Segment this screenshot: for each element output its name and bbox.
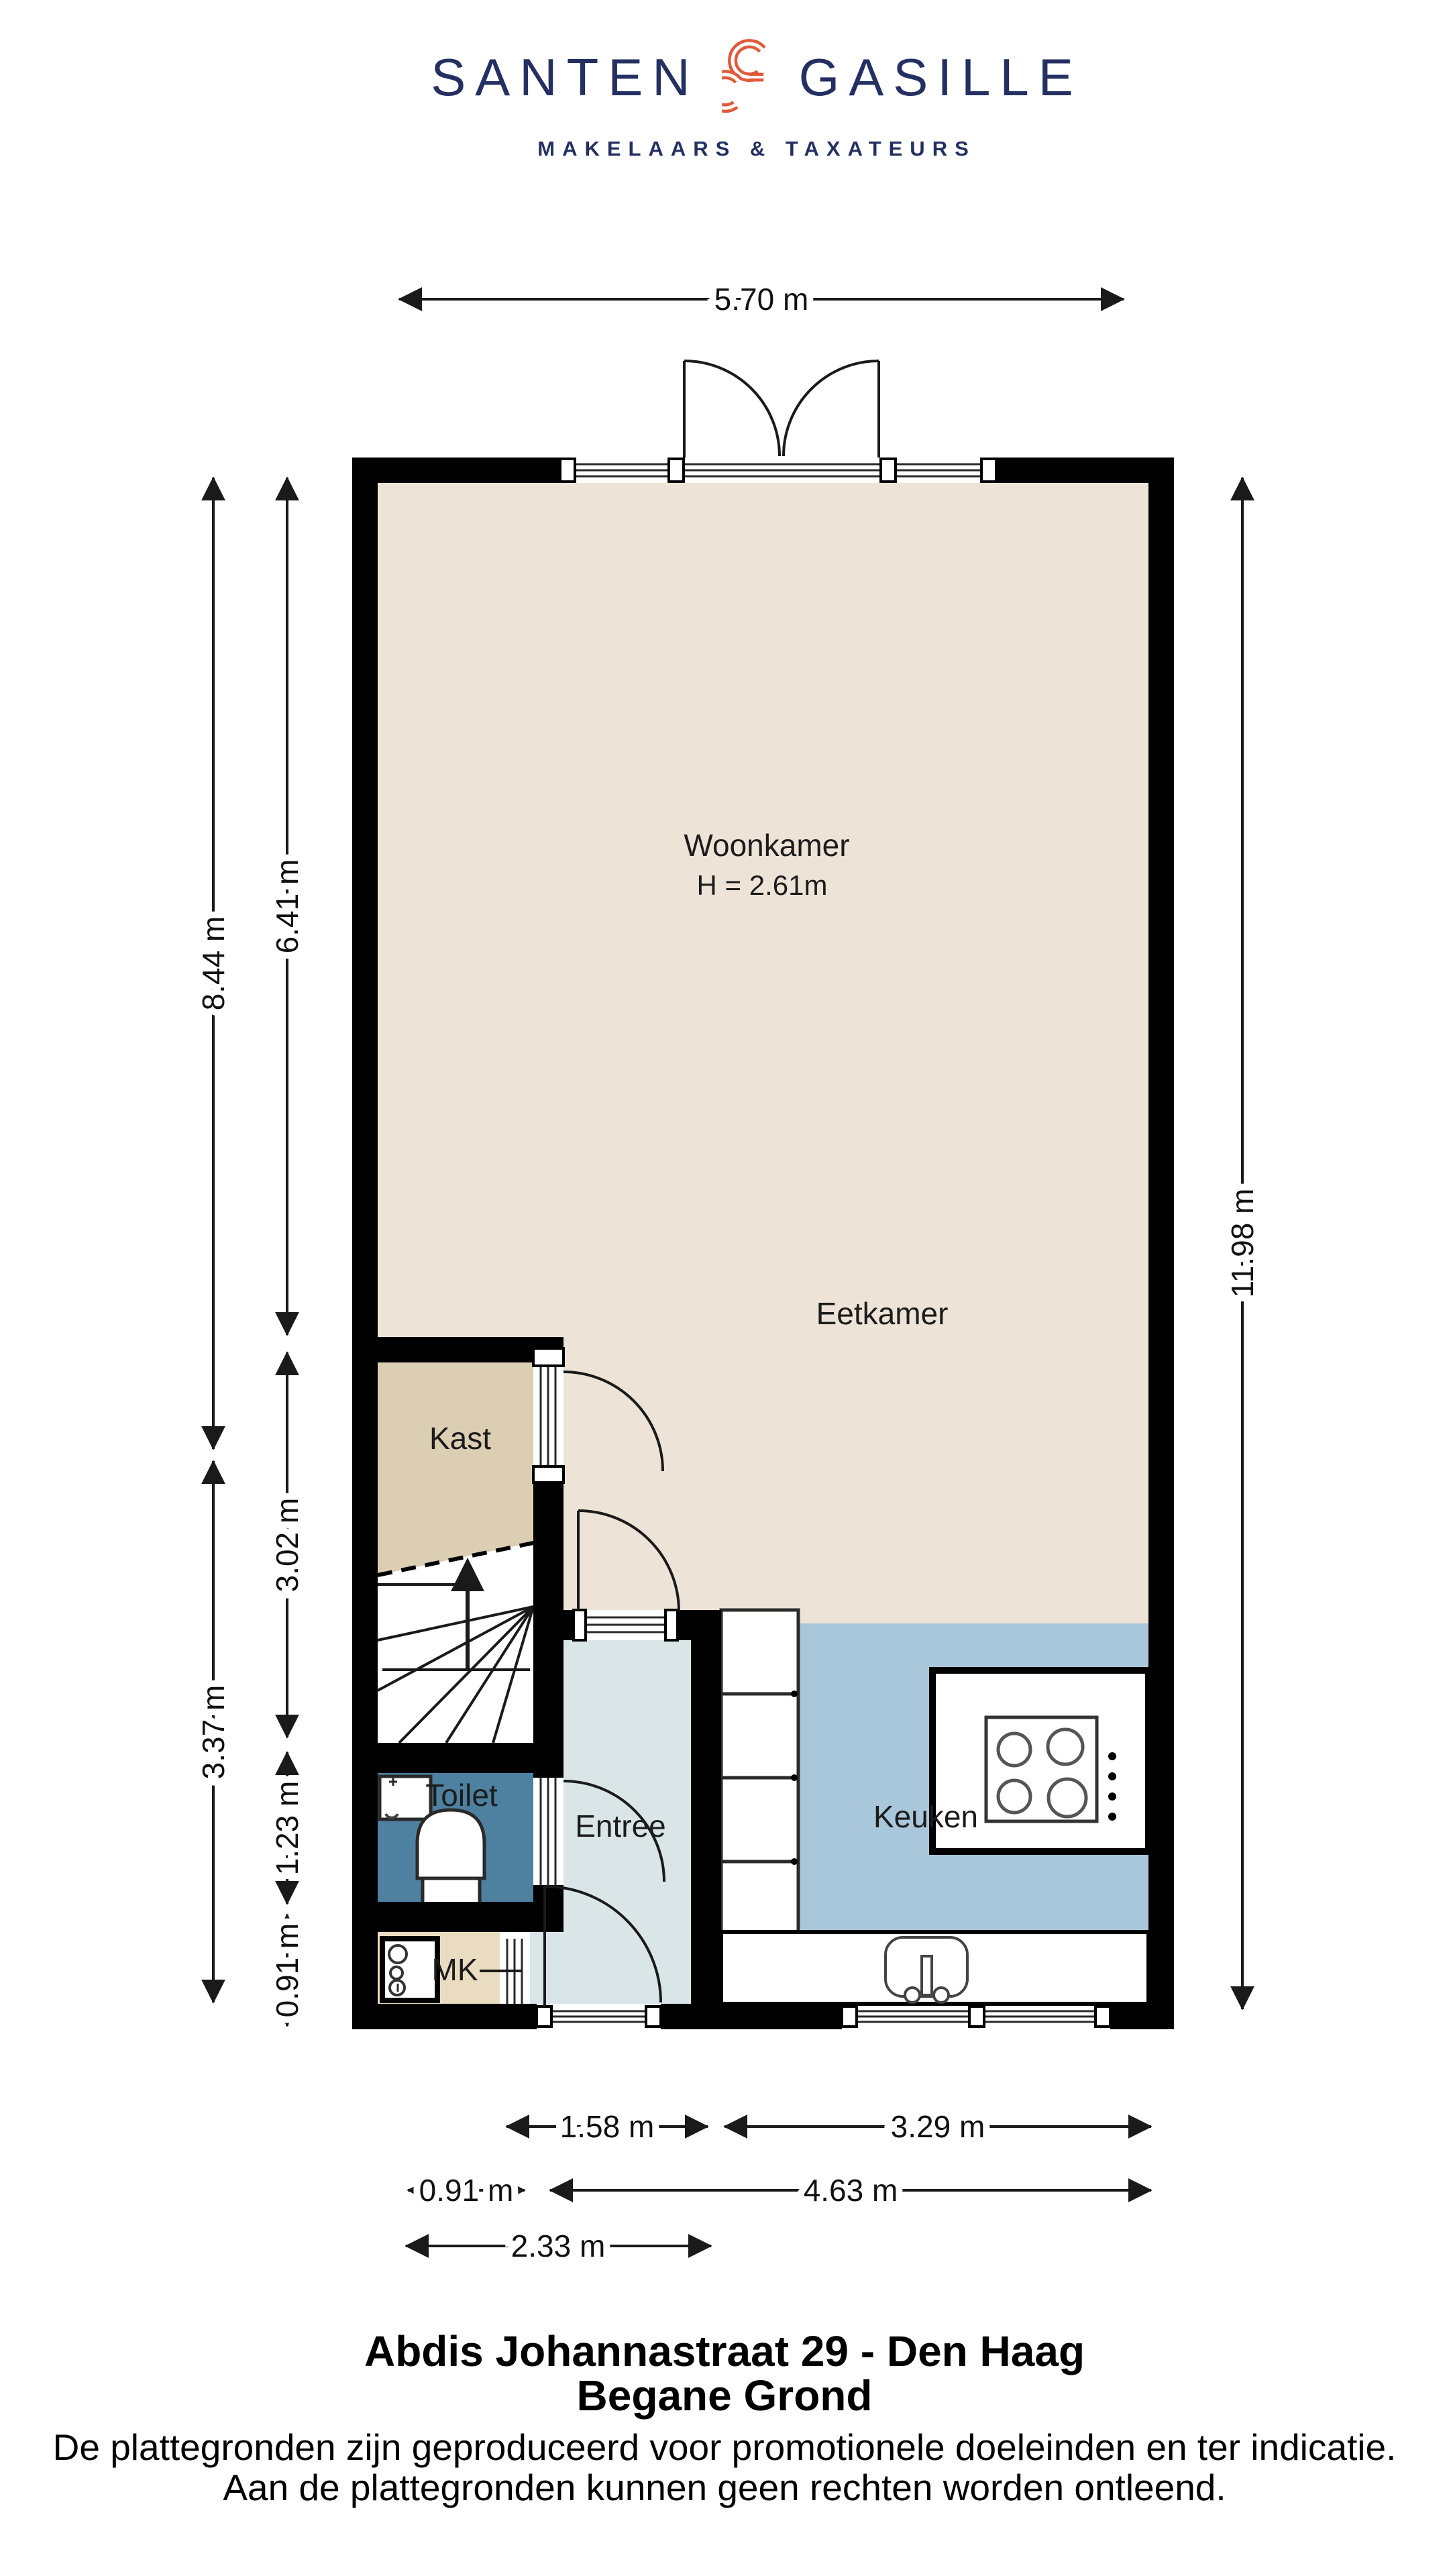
footer: Abdis Johannastraat 29 - Den Haag Begane… <box>0 2329 1449 2508</box>
label-keuken: Keuken <box>873 1799 978 1834</box>
dim-top-width: 5.70 m <box>714 282 809 317</box>
double-door <box>684 361 879 458</box>
label-entree: Entree <box>575 1809 666 1843</box>
dim-left-outer-bottom: 3.37 m <box>196 1685 231 1780</box>
toilet-bowl-icon <box>417 1810 484 1878</box>
kitchen-cabinets <box>721 1610 798 1932</box>
footer-address: Abdis Johannastraat 29 - Den Haag <box>0 2329 1449 2373</box>
dim-left-inner-3: 1.23 m <box>270 1781 305 1876</box>
kitchen-sink <box>885 1937 967 2002</box>
floor-plan: Woonkamer H = 2.61m Eetkamer Kast Toilet… <box>0 0 1449 2576</box>
label-eetkamer: Eetkamer <box>816 1296 949 1331</box>
dim-left-inner-1: 6.41 m <box>270 859 305 954</box>
top-window <box>560 459 996 482</box>
dim-bottom-entree: 1.58 m <box>560 2109 655 2144</box>
label-mk: MK <box>432 1952 478 1987</box>
label-woonkamer: Woonkamer <box>684 828 849 863</box>
label-kast: Kast <box>429 1421 491 1456</box>
dim-right-height: 11.98 m <box>1225 1189 1260 1298</box>
dim-left-inner-4: 0.91 m <box>270 1923 305 2018</box>
room-kast <box>378 1362 533 1575</box>
label-woonkamer-height: H = 2.61m <box>697 869 828 901</box>
toilet-sink-icon <box>380 1776 431 1819</box>
dim-bottom-left: 2.33 m <box>511 2229 606 2263</box>
toilet-tank-icon <box>423 1878 480 1904</box>
meter-cabinet-icon <box>382 1939 437 2000</box>
footer-floor: Begane Grond <box>0 2373 1449 2418</box>
footer-disclaimer-2: Aan de plattegronden kunnen geen rechten… <box>0 2467 1449 2508</box>
footer-disclaimer-1: De plattegronden zijn geproduceerd voor … <box>0 2427 1449 2467</box>
kitchen-window <box>842 2006 1110 2027</box>
dim-bottom-right: 4.63 m <box>804 2173 898 2208</box>
dim-left-outer-top: 8.44 m <box>196 916 231 1011</box>
label-toilet: Toilet <box>425 1778 498 1813</box>
dim-left-inner-2: 3.02 m <box>270 1498 305 1593</box>
dim-bottom-keuken: 3.29 m <box>891 2109 985 2144</box>
dim-bottom-mk: 0.91 m <box>419 2173 514 2208</box>
